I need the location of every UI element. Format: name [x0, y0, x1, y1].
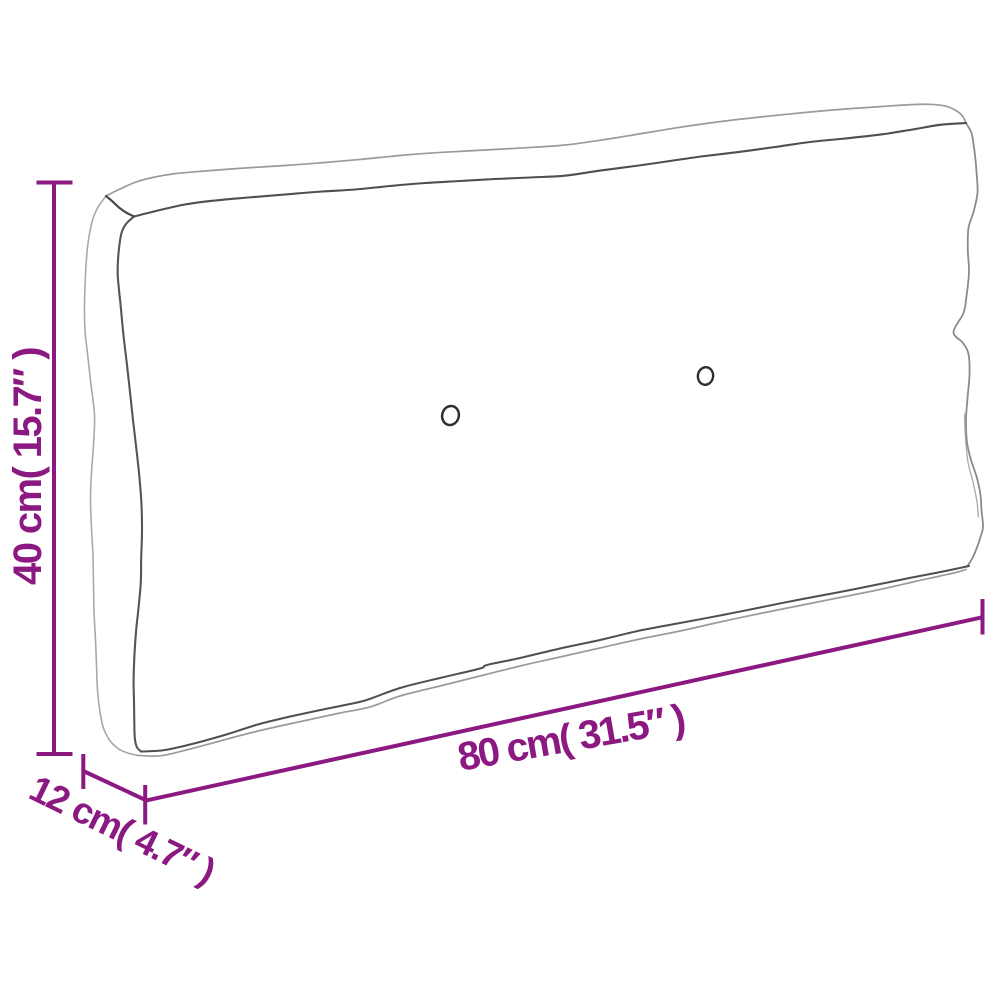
svg-text:12 cm( 4.7″ ): 12 cm( 4.7″ ) — [23, 768, 221, 893]
svg-text:40 cm( 15.7″ ): 40 cm( 15.7″ ) — [6, 348, 50, 585]
